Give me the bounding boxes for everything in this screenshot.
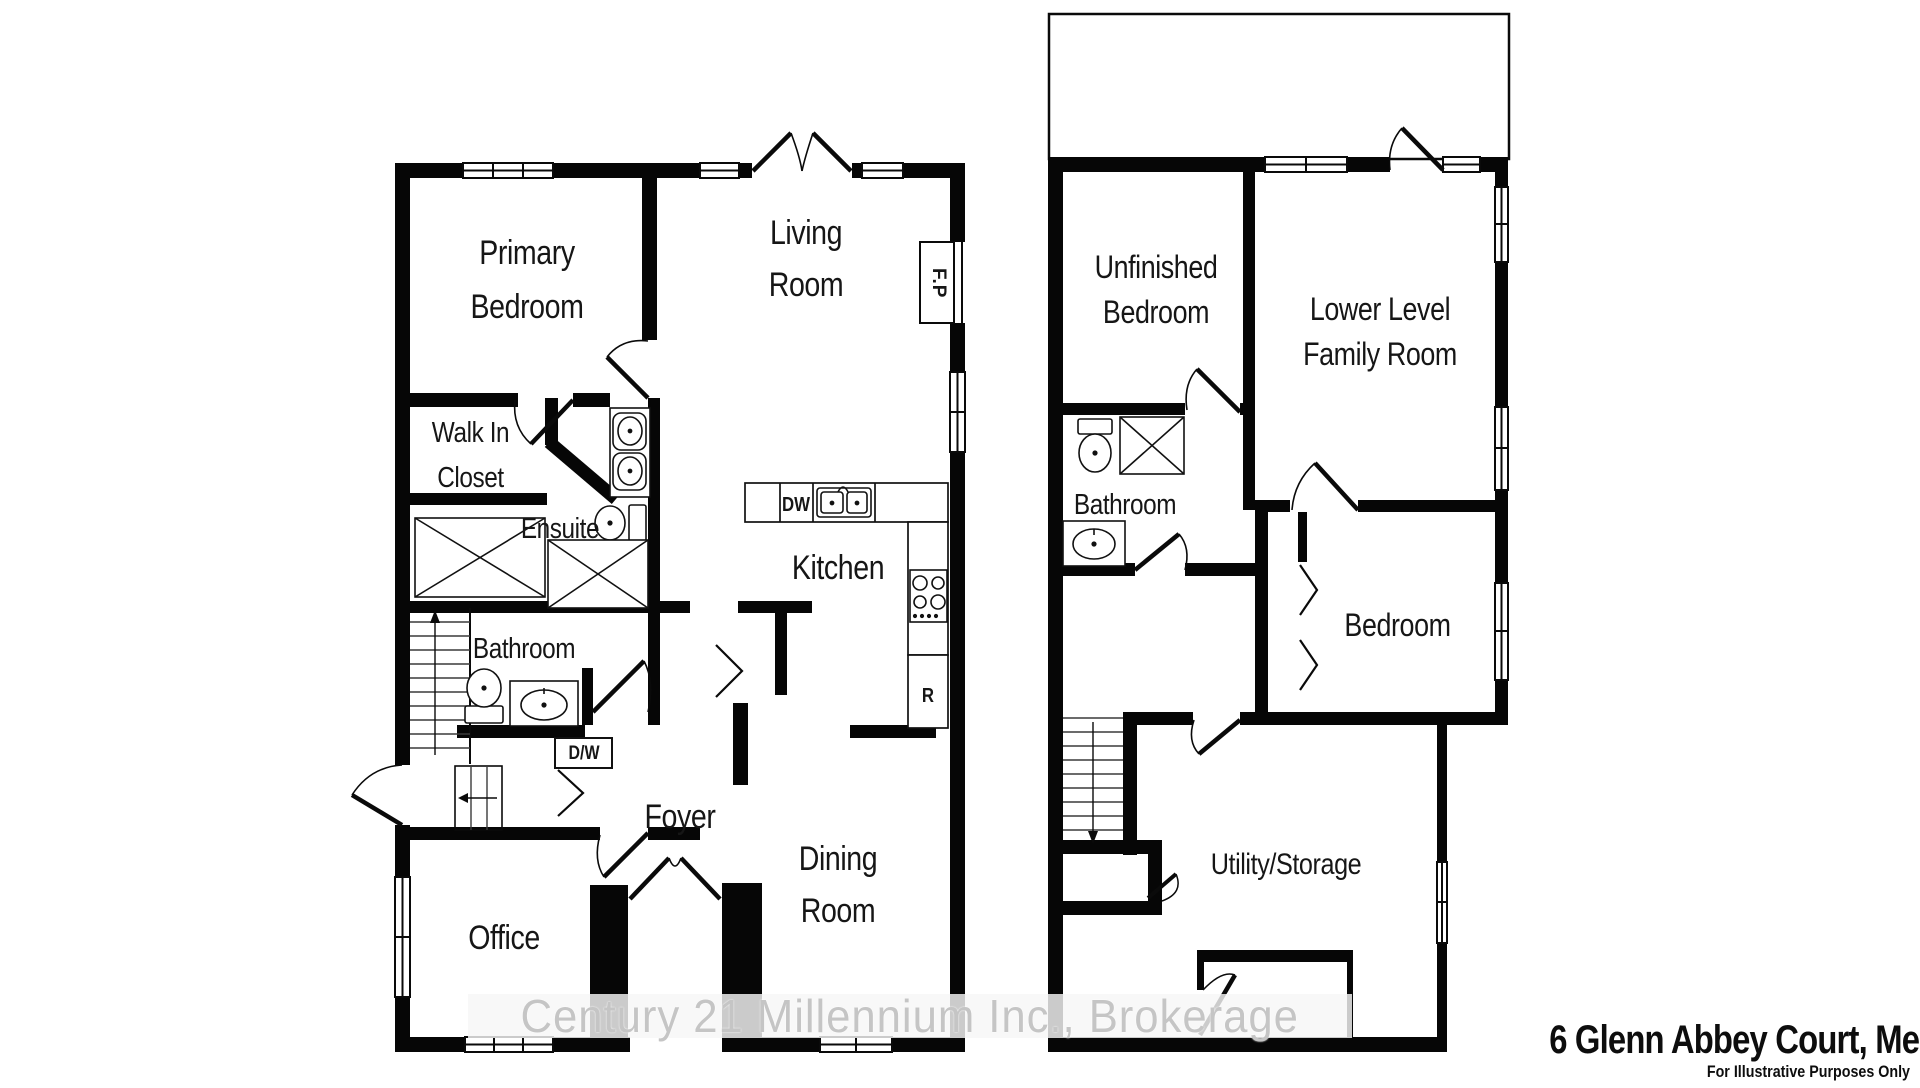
disclaimer-text: For Illustrative Purposes Only <box>1658 1062 1910 1082</box>
window <box>1495 187 1508 262</box>
label-dishwasher: DW <box>779 490 813 520</box>
sink-icon <box>613 413 646 450</box>
room-label-dining-room: Dining Room <box>779 833 897 937</box>
door-utility-hall <box>1191 720 1240 754</box>
room-label-office: Office <box>445 913 563 964</box>
label-refrigerator: R <box>910 681 945 711</box>
room-label-bedroom-lower: Bedroom <box>1324 601 1471 649</box>
window <box>1495 407 1508 490</box>
window <box>1437 862 1447 943</box>
lower-level-plan <box>1048 14 1509 1052</box>
window <box>1443 157 1480 172</box>
room-label-kitchen: Kitchen <box>771 543 905 594</box>
room-label-utility-storage: Utility/Storage <box>1177 842 1395 887</box>
sink-icon <box>1063 521 1125 566</box>
door-primary-bedroom <box>607 341 648 398</box>
label-fireplace: F.P <box>922 244 952 322</box>
sink-icon <box>613 453 646 490</box>
door-bathroom <box>593 661 651 712</box>
sink-icon <box>510 681 578 726</box>
window <box>463 163 553 178</box>
room-label-unfinished-bedroom: Unfinished Bedroom <box>1072 245 1240 335</box>
door-unfinished-bedroom <box>1186 369 1240 412</box>
room-label-ensuite: Ensuite <box>501 508 619 552</box>
window <box>862 163 903 178</box>
bathroom-fixtures <box>465 669 578 726</box>
watermark-band: Century 21 Millennium Inc., Brokerage <box>468 994 1352 1038</box>
window <box>395 877 410 997</box>
door-side-exterior <box>352 765 402 825</box>
entry-double-doors <box>630 858 720 899</box>
property-address: 6 Glenn Abbey Court, Meaford <box>1549 1018 1910 1063</box>
label-laundry-closet: D/W <box>559 740 609 769</box>
stairs-down <box>1063 718 1123 844</box>
room-label-living-room: Living Room <box>747 207 865 311</box>
brokerage-watermark: Century 21 Millennium Inc., Brokerage <box>521 989 1299 1043</box>
room-label-walk-in-closet: Walk In Closet <box>418 411 523 501</box>
toilet-icon <box>1078 419 1112 472</box>
patio-french-doors <box>753 133 851 171</box>
closet-bifold-doors <box>1300 565 1317 690</box>
window <box>700 163 739 178</box>
kitchen-sink-icon <box>817 487 871 517</box>
toilet-icon <box>465 669 503 723</box>
cooktop-icon <box>910 570 947 622</box>
floor-plan-page: Primary Bedroom Walk In Closet Ensuite B… <box>0 0 1920 1088</box>
window <box>1495 583 1508 680</box>
room-label-primary-bedroom: Primary Bedroom <box>443 226 611 334</box>
room-label-bathroom-main: Bathroom <box>448 628 599 672</box>
unexcavated-area <box>1049 14 1509 159</box>
floor-plan-drawing <box>0 0 1920 1088</box>
room-label-family-room: Lower Level Family Room <box>1296 287 1464 377</box>
shower-icon <box>1120 417 1184 474</box>
window <box>950 372 965 452</box>
door-bathroom <box>1135 534 1187 570</box>
laundry-bifold-door <box>558 770 583 816</box>
room-label-bathroom-lower: Bathroom <box>1049 484 1200 528</box>
door-bedroom <box>1292 463 1358 510</box>
door-walk-in-closet <box>515 400 573 444</box>
room-label-foyer: Foyer <box>621 792 739 843</box>
pantry-bifold-door <box>716 645 742 697</box>
window <box>1265 157 1347 172</box>
